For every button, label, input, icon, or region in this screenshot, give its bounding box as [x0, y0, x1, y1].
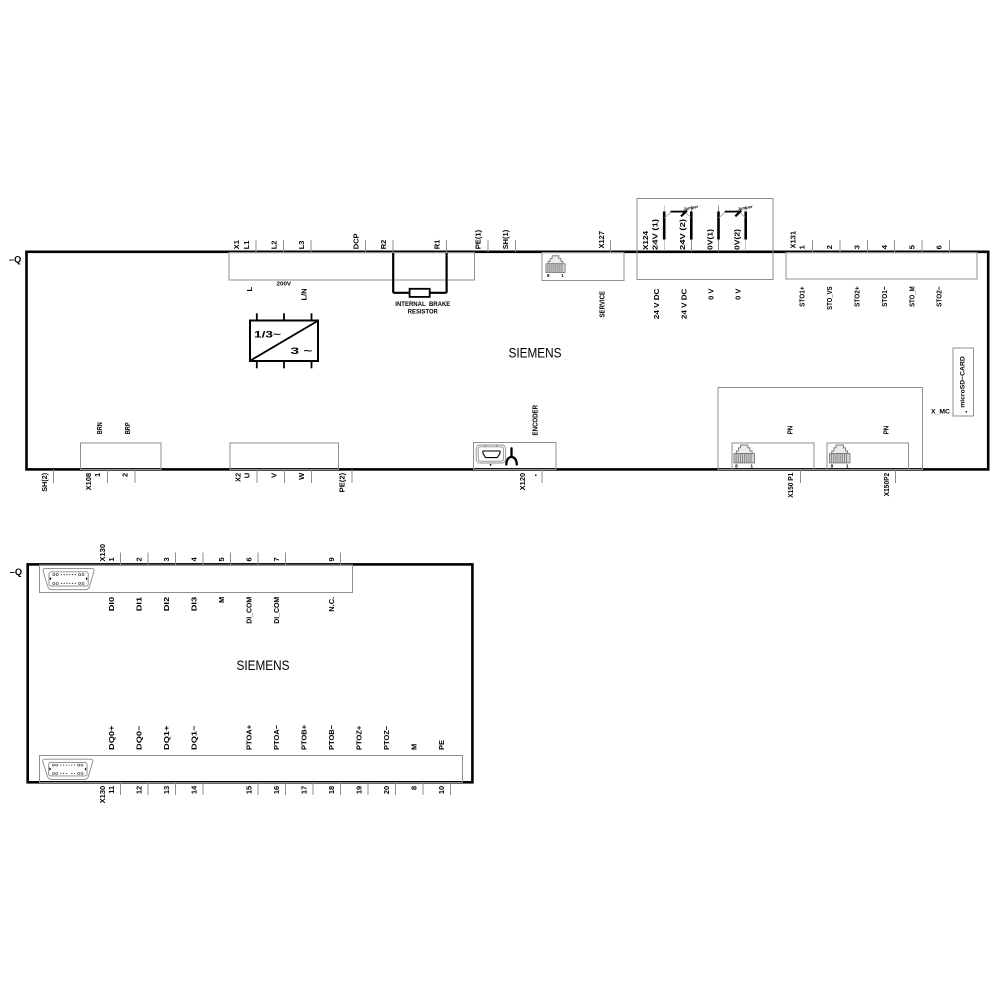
- svg-text:L: L: [245, 287, 254, 292]
- svg-text:10: 10: [437, 786, 446, 794]
- svg-text:DI_COM: DI_COM: [272, 597, 281, 624]
- svg-text:microSD−CARD: microSD−CARD: [959, 356, 966, 408]
- svg-text:DQ1−: DQ1−: [190, 725, 199, 750]
- svg-text:2: 2: [825, 245, 834, 249]
- svg-text:M: M: [217, 597, 226, 603]
- svg-text:M: M: [410, 744, 419, 750]
- svg-text:ENCODER: ENCODER: [531, 405, 540, 436]
- svg-text:6: 6: [245, 557, 254, 561]
- svg-text:STO_VS: STO_VS: [825, 286, 834, 310]
- svg-text:DI3: DI3: [190, 597, 199, 612]
- svg-text:DI0: DI0: [107, 597, 116, 612]
- svg-text:STO1−: STO1−: [880, 286, 889, 307]
- svg-text:19: 19: [355, 786, 364, 794]
- svg-text:V: V: [270, 473, 279, 478]
- svg-text:X130: X130: [98, 544, 107, 562]
- svg-text:17: 17: [300, 786, 309, 794]
- svg-text:X1: X1: [232, 240, 241, 249]
- svg-text:–Q: –Q: [10, 567, 22, 577]
- svg-text:L/N: L/N: [300, 288, 309, 300]
- svg-text:2: 2: [121, 473, 130, 477]
- svg-text:PTOB−: PTOB−: [327, 724, 336, 750]
- svg-text:STO1+: STO1+: [798, 286, 807, 307]
- svg-text:STO_M: STO_M: [907, 286, 916, 307]
- svg-text:INTERNAL BRAKE: INTERNAL BRAKE: [395, 302, 450, 308]
- svg-text:5: 5: [907, 245, 916, 249]
- svg-text:PTOA+: PTOA+: [245, 724, 254, 750]
- svg-text:0V(1): 0V(1): [705, 228, 714, 250]
- svg-text:–Q: –Q: [9, 254, 21, 264]
- svg-text:DI_COM: DI_COM: [245, 597, 254, 624]
- svg-text:X124: X124: [641, 230, 650, 250]
- svg-text:BRN: BRN: [95, 422, 104, 434]
- svg-text:PTOB+: PTOB+: [300, 724, 309, 750]
- svg-text:200V: 200V: [277, 282, 292, 288]
- svg-text:7: 7: [272, 557, 281, 561]
- svg-text:PTOA−: PTOA−: [272, 724, 281, 750]
- svg-text:PE(2): PE(2): [338, 472, 347, 492]
- svg-text:PE(1): PE(1): [474, 229, 483, 249]
- svg-text:DI1: DI1: [135, 597, 144, 612]
- svg-text:3 ~: 3 ~: [291, 346, 313, 356]
- svg-text:1/3~: 1/3~: [254, 330, 281, 340]
- svg-text:13: 13: [162, 786, 171, 794]
- svg-text:1: 1: [93, 473, 102, 477]
- svg-text:SH(1): SH(1): [501, 229, 510, 249]
- svg-text:X120: X120: [518, 473, 527, 491]
- svg-text:X150 P1: X150 P1: [786, 473, 795, 498]
- svg-text:9: 9: [327, 557, 336, 561]
- svg-text:15: 15: [245, 786, 254, 794]
- svg-text:18: 18: [327, 786, 336, 794]
- svg-text:11: 11: [107, 786, 116, 794]
- svg-text:1: 1: [107, 557, 116, 561]
- svg-text:X127: X127: [597, 231, 606, 249]
- svg-text:DCP: DCP: [352, 233, 361, 249]
- svg-text:24V (1): 24V (1): [651, 218, 660, 250]
- svg-text:PN: PN: [881, 426, 890, 435]
- svg-text:8: 8: [410, 786, 419, 790]
- svg-text:STO2−: STO2−: [935, 286, 944, 307]
- svg-text:0 V: 0 V: [707, 289, 716, 300]
- svg-text:16: 16: [272, 786, 281, 794]
- svg-text:RESISTOR: RESISTOR: [408, 310, 439, 316]
- svg-text:5: 5: [217, 557, 226, 561]
- svg-text:DQ0−: DQ0−: [135, 725, 144, 750]
- svg-text:R2: R2: [379, 240, 388, 250]
- svg-text:DI2: DI2: [162, 597, 171, 612]
- svg-text:U: U: [243, 473, 252, 478]
- svg-text:3: 3: [162, 557, 171, 561]
- svg-text:14: 14: [190, 785, 199, 794]
- svg-text:SH(2): SH(2): [40, 472, 49, 491]
- svg-text:X150P2: X150P2: [882, 473, 891, 497]
- svg-text:12: 12: [135, 786, 144, 794]
- svg-text:24 V DC: 24 V DC: [679, 288, 688, 319]
- svg-text:SERVICE: SERVICE: [598, 291, 607, 318]
- svg-text:6: 6: [935, 245, 944, 249]
- svg-text:24V (2): 24V (2): [678, 218, 687, 250]
- svg-text:X_MC: X_MC: [931, 409, 950, 416]
- svg-text:DQ1+: DQ1+: [162, 725, 171, 750]
- svg-text:DQ0+: DQ0+: [107, 725, 116, 750]
- svg-text:STO2+: STO2+: [853, 286, 862, 307]
- svg-text:0V(2): 0V(2): [733, 228, 742, 250]
- svg-text:L2: L2: [269, 241, 278, 250]
- svg-text:L3: L3: [297, 241, 306, 250]
- svg-text:PE: PE: [437, 740, 446, 750]
- svg-text:X131: X131: [789, 231, 798, 249]
- svg-text:PTOZ+: PTOZ+: [355, 725, 364, 750]
- svg-text:R1: R1: [432, 240, 441, 250]
- svg-text:SIEMENS: SIEMENS: [237, 657, 290, 673]
- svg-text:2: 2: [135, 557, 144, 561]
- svg-text:PN: PN: [786, 426, 795, 435]
- svg-text:X130: X130: [98, 786, 107, 804]
- svg-text:20: 20: [382, 786, 391, 794]
- svg-text:24 V DC: 24 V DC: [652, 288, 661, 319]
- svg-text:W: W: [297, 472, 306, 480]
- svg-text:0 V: 0 V: [734, 289, 743, 300]
- svg-text:BRP: BRP: [123, 422, 132, 434]
- svg-text:3: 3: [853, 245, 862, 249]
- svg-text:X2: X2: [233, 473, 242, 482]
- svg-text:SIEMENS: SIEMENS: [509, 344, 562, 360]
- svg-text:N.C.: N.C.: [327, 597, 336, 612]
- svg-text:L1: L1: [242, 241, 251, 250]
- svg-text:1: 1: [798, 245, 807, 249]
- svg-text:PTOZ−: PTOZ−: [382, 725, 391, 750]
